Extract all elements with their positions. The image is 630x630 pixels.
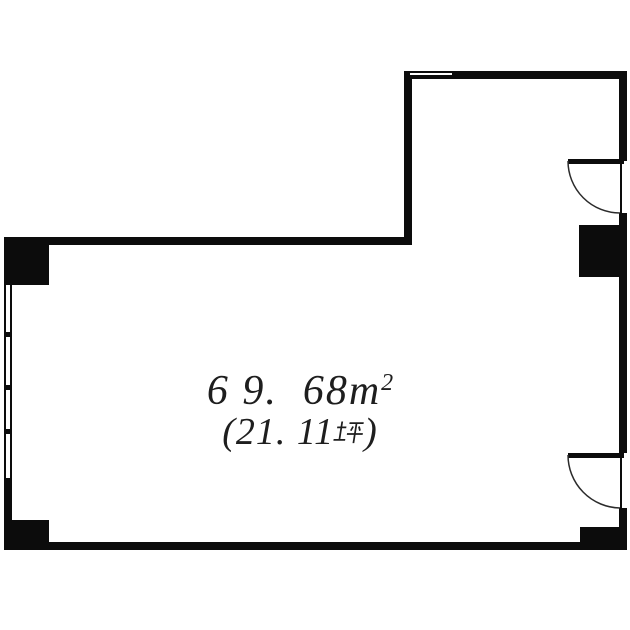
wall-bottom — [4, 542, 627, 550]
wall-upper-left — [404, 71, 412, 245]
pillar-bottom-left — [4, 520, 49, 550]
area-tsubo: (21. 11 坪) — [170, 412, 430, 452]
window-mullion-tick — [4, 332, 11, 337]
pillar-right-mid — [579, 225, 627, 277]
area-m2-superscript: 2 — [381, 370, 393, 396]
door-leaf-lower — [568, 453, 624, 458]
door-jamb-upper — [620, 161, 622, 213]
window-mullion-tick — [4, 385, 11, 390]
door-leaf-upper — [568, 159, 624, 164]
pillar-bottom-right — [580, 527, 627, 550]
door-swing-arc-upper — [568, 161, 620, 213]
window-mullion-tick — [4, 429, 11, 434]
area-label: 6 9. 68m2 (21. 11 坪) — [170, 363, 430, 452]
door-jamb-lower — [620, 453, 622, 508]
door-swing-arcs — [0, 0, 630, 630]
tsubo-kanji-icon: 坪 — [332, 416, 367, 447]
floor-plan: 6 9. 68m2 (21. 11 坪) — [0, 0, 630, 630]
area-m2-value: 6 9. 68m — [207, 368, 381, 414]
window-top — [410, 71, 452, 77]
area-square-meters: 6 9. 68m2 — [170, 363, 430, 412]
window-left — [4, 285, 12, 478]
wall-lower-top — [4, 237, 412, 245]
area-tsubo-open: (21. 11 — [222, 411, 334, 453]
pillar-top-left — [4, 240, 49, 285]
door-swing-arc-lower — [568, 455, 620, 508]
wall-right-upper — [619, 71, 627, 161]
